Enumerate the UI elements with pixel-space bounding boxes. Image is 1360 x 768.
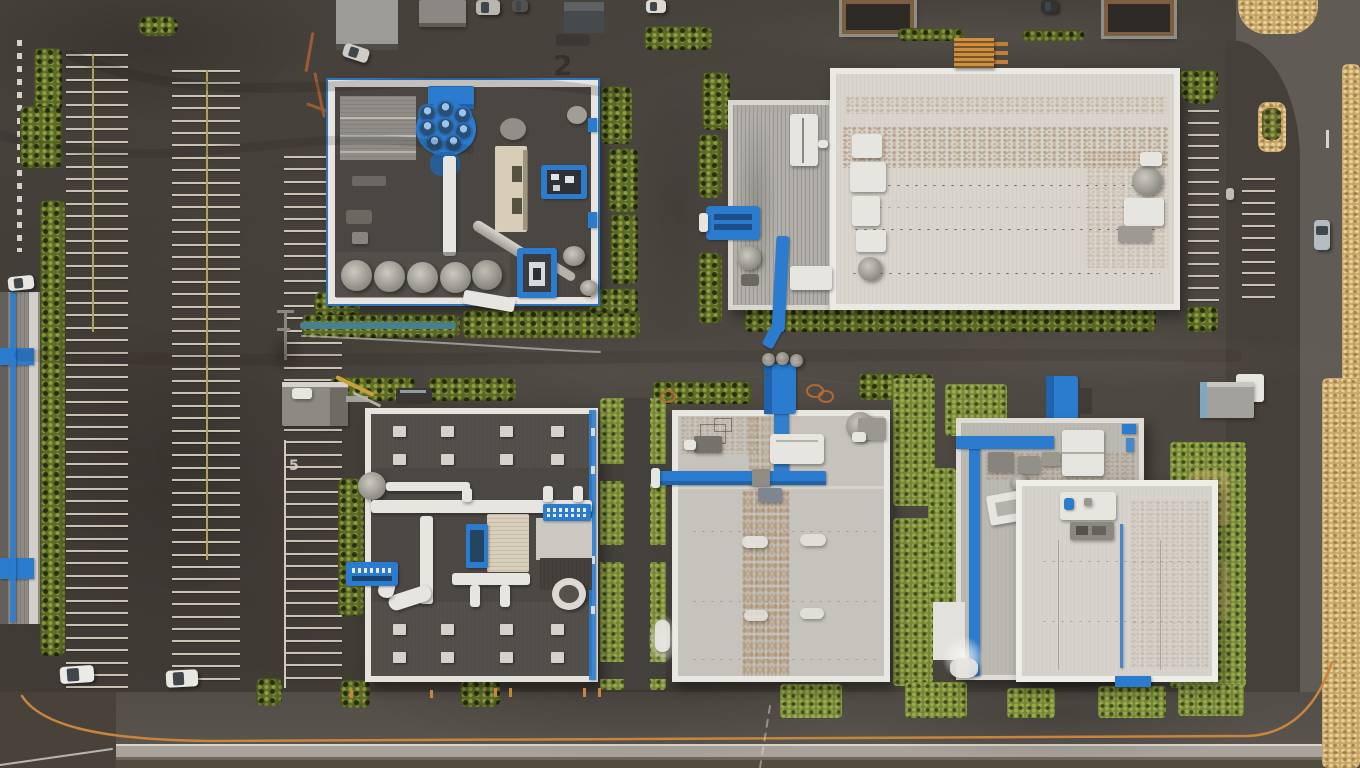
parking-line: [1242, 249, 1275, 251]
parking-line: [284, 590, 342, 592]
tank: [737, 246, 761, 270]
shape: [1160, 540, 1161, 670]
parking-line: [1242, 272, 1275, 274]
shape: [346, 210, 372, 224]
oline: [509, 688, 512, 697]
lamp-post: [1326, 130, 1329, 148]
b4-hvac: [770, 434, 824, 464]
oline: [494, 688, 497, 697]
parking-line: [1188, 181, 1219, 183]
hedge: [644, 26, 712, 50]
parking-line: [66, 314, 128, 316]
white-unit: [386, 482, 470, 491]
stain: [845, 96, 1167, 114]
parking-line: [66, 476, 128, 478]
white-unit: [742, 536, 768, 548]
drygrass: [1342, 64, 1360, 394]
b5-blue-beam: [956, 436, 1054, 449]
white-unit: [655, 620, 670, 652]
parking-line: [172, 578, 240, 580]
skylight: [551, 426, 564, 437]
hedge: [698, 252, 722, 324]
b1-pipe: [340, 117, 416, 119]
drygrass: [1322, 378, 1360, 768]
shape: [470, 530, 484, 562]
shape: [1092, 526, 1106, 535]
shape: [1078, 388, 1092, 414]
white-unit: [452, 573, 530, 585]
white-unit: [573, 486, 583, 502]
tank: [407, 262, 438, 293]
car-windshield: [1316, 226, 1328, 235]
parking-line: [1242, 284, 1275, 286]
parking-line: [66, 327, 128, 329]
blue-dk: [658, 481, 826, 485]
parking-line: [66, 587, 128, 589]
parking-line: [66, 562, 128, 564]
gray-shed-roofline: [1200, 382, 1254, 387]
corner-asphalt: [0, 692, 116, 768]
fan: [438, 119, 453, 134]
parking-line: [66, 451, 128, 453]
parking-line: [66, 686, 128, 688]
parking-line: [1188, 169, 1219, 171]
b5-blue-line: [1120, 524, 1123, 668]
car-windshield: [481, 2, 489, 13]
parking-line: [66, 525, 128, 527]
parking-line: [66, 376, 128, 378]
skylight: [393, 652, 406, 663]
tank: [374, 261, 405, 292]
parking-line: [1242, 261, 1275, 263]
car-windshield: [516, 1, 521, 10]
parking-line: [66, 104, 128, 106]
parking-line: [66, 178, 128, 180]
parking-line: [66, 252, 128, 254]
parking-line: [66, 228, 128, 230]
roof-ring: [552, 578, 586, 610]
b3-blue-label: [543, 504, 591, 521]
skylight: [441, 454, 454, 465]
stain2: [742, 490, 790, 676]
gray-unit: [500, 118, 526, 140]
parking-line: [66, 649, 128, 651]
aerial-scene: 25: [0, 0, 1360, 768]
planter-basin: [1104, 0, 1174, 36]
shape: [551, 174, 559, 180]
b1-pipe: [340, 151, 416, 153]
painted-number: 2: [553, 52, 572, 80]
shape: [714, 224, 752, 230]
grass: [893, 518, 933, 686]
dots: [690, 600, 878, 603]
hedge: [462, 310, 640, 338]
hedge: [698, 134, 722, 198]
hedge: [34, 48, 62, 112]
parking-line: [66, 166, 128, 168]
cable-coil: [660, 390, 676, 403]
parking-line: [1188, 145, 1219, 147]
fan: [446, 136, 461, 151]
parking-line: [66, 401, 128, 403]
skylight: [393, 426, 406, 437]
gray-unit: [352, 232, 368, 244]
parking-line: [66, 662, 128, 664]
parking-line: [284, 615, 342, 617]
tank: [563, 246, 585, 266]
gray-unit: [567, 106, 587, 124]
parking-line: [1242, 202, 1275, 204]
parking-line: [284, 677, 342, 679]
white-unit: [699, 213, 708, 232]
handicap-mark: [1226, 188, 1234, 200]
parking-line: [284, 503, 342, 505]
parking-line: [284, 652, 342, 654]
oline: [350, 690, 353, 698]
shape: [802, 118, 804, 163]
skylight: [500, 652, 513, 663]
car-windshield: [347, 46, 359, 59]
light-patch: [900, 330, 1360, 390]
hedge: [138, 16, 178, 36]
b4-left-gray: [694, 436, 722, 453]
parking-line: [66, 550, 128, 552]
b1-pipe: [340, 135, 416, 137]
dots: [690, 530, 878, 533]
dash-h: [547, 514, 587, 517]
cable-coil: [818, 390, 834, 403]
hedge: [608, 148, 638, 212]
building-left-blue-stripe: [10, 292, 16, 622]
hvac: [1140, 152, 1162, 166]
hedge: [1180, 70, 1218, 104]
grass: [928, 468, 956, 606]
teal-pipe: [300, 322, 456, 329]
hedge: [744, 308, 1156, 332]
skylight: [551, 454, 564, 465]
parking-line: [66, 488, 128, 490]
white-unit: [292, 388, 312, 399]
tank: [341, 260, 372, 291]
dk: [266, 330, 306, 376]
parking-line: [66, 116, 128, 118]
dots: [858, 206, 1150, 208]
shape: [523, 150, 528, 230]
car-windshield: [67, 668, 79, 682]
b5-unit-logo: [1064, 498, 1074, 510]
white-divider: [284, 440, 286, 688]
shape: [282, 382, 348, 387]
parking-line: [284, 516, 342, 518]
oline: [583, 688, 586, 697]
car-windshield: [173, 672, 185, 685]
shape: [553, 185, 560, 191]
fan: [438, 102, 453, 117]
insulator: [762, 353, 775, 366]
parking-line: [172, 628, 240, 630]
hvac: [850, 162, 886, 192]
stain: [1130, 500, 1210, 668]
parking-line: [284, 478, 342, 480]
parking-line: [284, 540, 342, 542]
shape: [565, 176, 574, 183]
parking-line: [66, 389, 128, 391]
fan: [420, 121, 435, 136]
car: [7, 275, 34, 292]
white-unit: [462, 488, 472, 502]
parking-line: [1188, 122, 1219, 124]
parking-line: [1188, 275, 1219, 277]
parking-line: [284, 578, 342, 580]
blue-dk: [764, 364, 772, 414]
parking-line: [1242, 190, 1275, 192]
parking-line: [66, 190, 128, 192]
white-unit: [684, 440, 696, 450]
white-unit: [950, 658, 978, 678]
hvac: [852, 134, 882, 158]
parking-line: [172, 653, 240, 655]
parking-line: [1242, 237, 1275, 239]
insulator: [790, 354, 803, 367]
outline: [714, 418, 732, 432]
white-unit: [852, 432, 866, 442]
white-unit: [818, 140, 828, 148]
parking-line: [66, 538, 128, 540]
shape: [352, 576, 392, 581]
hedge: [428, 377, 516, 401]
parking-line: [1242, 296, 1275, 298]
parking-line: [66, 364, 128, 366]
b5-blue-bottom: [1115, 676, 1151, 687]
grass: [1098, 686, 1166, 718]
parking-line: [66, 302, 128, 304]
gray-shed: [1200, 382, 1254, 418]
parking-line: [1188, 157, 1219, 159]
gray-shed-edge: [1200, 382, 1207, 418]
parking-line: [284, 627, 342, 629]
shape: [1062, 452, 1104, 454]
tank: [440, 262, 471, 293]
shape: [533, 268, 541, 280]
skylight: [551, 652, 564, 663]
gray-unit: [1118, 226, 1152, 242]
shape: [400, 390, 426, 393]
gray-unit: [1042, 452, 1060, 466]
skylight: [393, 624, 406, 635]
dark-equipment: [556, 34, 590, 46]
fan: [427, 136, 442, 151]
parking-line: [1188, 228, 1219, 230]
corr-h: [487, 514, 529, 572]
gray-unit: [1018, 456, 1040, 474]
hvac: [856, 230, 886, 252]
fan: [455, 108, 470, 123]
metal-shed: [336, 0, 398, 50]
parking-line: [66, 128, 128, 130]
parking-line: [1242, 213, 1275, 215]
white-unit: [470, 585, 480, 607]
car: [512, 0, 528, 12]
hedge: [338, 478, 364, 616]
dash-h: [352, 568, 392, 573]
hedge: [1186, 306, 1218, 332]
parking-line: [66, 438, 128, 440]
grass: [905, 682, 967, 718]
fan: [420, 106, 435, 121]
white-unit: [800, 608, 824, 619]
parking-line: [1188, 110, 1219, 112]
parking-line: [172, 616, 240, 618]
shape: [591, 606, 595, 614]
parking-line: [66, 339, 128, 341]
car: [646, 0, 666, 13]
parking-line: [284, 640, 342, 642]
dots: [858, 184, 1160, 187]
skylight: [441, 426, 454, 437]
dry-grass-mound: [1238, 0, 1318, 34]
shape: [1058, 540, 1059, 670]
parking-line: [284, 565, 342, 567]
dk: [735, 112, 777, 298]
grass: [1007, 688, 1055, 718]
shape: [352, 176, 386, 186]
building-left-blue-band: [0, 558, 34, 579]
roof-box-edge: [419, 23, 466, 27]
parking-line: [284, 602, 342, 604]
parking-line: [284, 429, 342, 431]
path: [624, 398, 650, 690]
parking-line: [66, 600, 128, 602]
oline: [598, 688, 601, 697]
car-windshield: [650, 2, 657, 12]
car-windshield: [13, 278, 23, 289]
dots: [440, 466, 590, 470]
skylight: [500, 454, 513, 465]
parking-line: [66, 290, 128, 292]
dots: [690, 658, 878, 661]
blue-unit-annex: [706, 206, 760, 240]
grass: [780, 684, 842, 718]
gray-unit: [988, 452, 1014, 472]
car: [1041, 0, 1058, 13]
annex-rooftop-unit: [790, 114, 818, 166]
parking-line: [1188, 204, 1219, 206]
parking-line: [172, 665, 240, 667]
parking-line: [1188, 263, 1219, 265]
duct-vertical: [443, 156, 456, 256]
oline: [430, 690, 433, 698]
shape: [776, 440, 818, 442]
dots: [852, 228, 1160, 231]
gray-unit: [1084, 498, 1092, 506]
dash-h: [547, 508, 587, 512]
shape: [741, 274, 759, 286]
parking-line: [284, 664, 342, 666]
yellow-divider: [206, 70, 208, 560]
pallet-stack: [954, 38, 994, 68]
parking-line: [172, 640, 240, 642]
hedge: [340, 680, 370, 708]
hedge: [1022, 30, 1084, 41]
skylight: [441, 652, 454, 663]
skylight: [393, 454, 406, 465]
hvac: [852, 196, 880, 226]
parking-line: [66, 66, 128, 68]
parking-line: [66, 54, 128, 56]
insulator: [776, 352, 789, 365]
hedge: [40, 200, 65, 656]
car: [1314, 220, 1330, 250]
shape: [591, 428, 595, 436]
white-unit: [800, 534, 826, 546]
dots: [850, 272, 1160, 275]
hedge: [610, 214, 638, 284]
parking-line: [66, 141, 128, 143]
shape: [714, 214, 752, 220]
parking-line: [284, 441, 342, 443]
blue: [1126, 438, 1134, 452]
parking-line: [1188, 240, 1219, 242]
parking-line: [66, 277, 128, 279]
pole-frame: [277, 310, 294, 313]
parking-line: [66, 463, 128, 465]
parking-line: [66, 203, 128, 205]
blue: [588, 212, 597, 228]
hedge: [702, 72, 730, 130]
parking-line: [172, 566, 240, 568]
parking-line: [66, 91, 128, 93]
tank: [1132, 166, 1162, 196]
parking-line: [172, 591, 240, 593]
grass: [1178, 684, 1244, 716]
shape: [1076, 526, 1088, 535]
parking-line: [66, 352, 128, 354]
parking-line: [1188, 287, 1219, 289]
parking-line: [66, 215, 128, 217]
parking-line: [66, 637, 128, 639]
dark-shed-ridge: [564, 2, 604, 11]
parking-line: [1188, 193, 1219, 195]
parking-line: [66, 153, 128, 155]
parking-line: [66, 426, 128, 428]
parking-line: [66, 513, 128, 515]
car: [59, 665, 94, 684]
parking-line: [284, 454, 342, 456]
hedge: [1262, 108, 1281, 140]
shape: [512, 198, 522, 214]
skylight: [500, 426, 513, 437]
hedge: [20, 106, 62, 168]
shape: [512, 166, 522, 182]
hedge: [600, 86, 632, 144]
parking-line: [1242, 178, 1275, 180]
blue-skid-left: [346, 562, 398, 586]
white-unit: [543, 486, 553, 502]
parking-line: [1188, 252, 1219, 254]
parking-line: [284, 553, 342, 555]
parking-line: [66, 612, 128, 614]
tank: [472, 260, 502, 290]
white-unit: [651, 468, 660, 488]
skylight: [551, 624, 564, 635]
yellow-divider: [92, 54, 94, 332]
parking-line: [66, 624, 128, 626]
hvac: [1124, 198, 1164, 226]
blue: [588, 118, 597, 132]
parking-line: [1188, 216, 1219, 218]
path: [600, 545, 666, 562]
parking-line: [284, 528, 342, 530]
